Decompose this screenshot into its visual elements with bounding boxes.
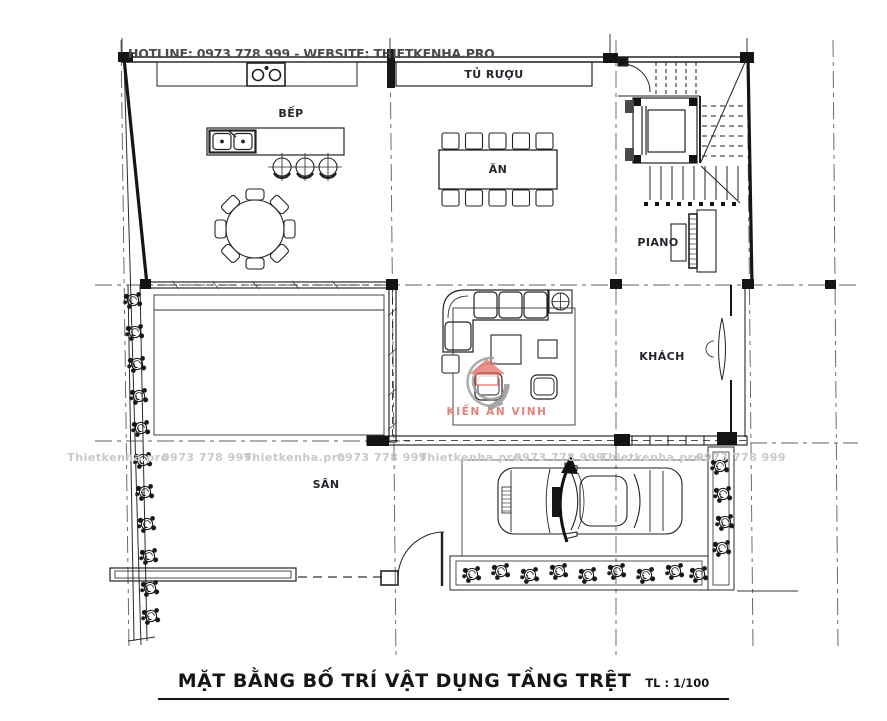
room-label-yard: SÂN: [313, 478, 340, 491]
round-dining-set: [215, 189, 295, 269]
kitchen-counter: [157, 62, 357, 86]
watermark-item: Thietkenha.pro: [67, 451, 168, 464]
watermark-item: 0973 778 999: [514, 451, 604, 464]
logo-watermark-text: KIẾN AN VINH: [446, 403, 547, 418]
hotline-header: HOTLINE: 0973 778 999 - WEBSITE: THIETKE…: [128, 46, 495, 61]
car: [498, 463, 682, 539]
stair-core: [618, 58, 746, 206]
bar-stools: [268, 153, 342, 181]
drawing-title-block: MẶT BẰNG BỐ TRÍ VẬT DỤNG TẦNG TRỆTTL : 1…: [0, 670, 887, 700]
watermark-item: Thietkenha.pro: [419, 451, 520, 464]
drawing-title: MẶT BẰNG BỐ TRÍ VẬT DỤNG TẦNG TRỆT: [178, 670, 632, 692]
floorplan-page: HOTLINE: 0973 778 999 - WEBSITE: THIETKE…: [0, 0, 887, 721]
plant-pot: [549, 290, 572, 313]
room-label-dining: ĂN: [489, 163, 508, 176]
watermark-row: Thietkenha.pro 0973 778 999 Thietkenha.p…: [67, 451, 786, 464]
bottom-planter-strip: [450, 556, 708, 590]
floorplan-drawing: HOTLINE: 0973 778 999 - WEBSITE: THIETKE…: [0, 0, 887, 721]
watermark-item: Thietkenha.pro: [600, 451, 701, 464]
sliding-gate: [110, 568, 296, 581]
inner-yard-terrace: [154, 281, 397, 435]
khach-door: [706, 318, 725, 380]
coffee-table: [491, 335, 521, 364]
room-label-wine-cabinet: TỦ RƯỢU: [464, 67, 523, 81]
room-label-kitchen: BẾP: [278, 105, 303, 120]
room-label-living: KHÁCH: [639, 350, 685, 363]
watermark-item: Thietkenha.pro: [244, 451, 345, 464]
watermark-item: 0973 778 999: [162, 451, 252, 464]
elevator: [625, 98, 697, 163]
kitchen-island: [207, 128, 344, 155]
watermark-item: 0973 778 999: [696, 451, 786, 464]
watermark-item: 0973 778 999: [337, 451, 427, 464]
right-planter-strip: [708, 447, 734, 590]
room-label-piano: PIANO: [637, 236, 678, 249]
pedestrian-gate: [381, 532, 444, 586]
drawing-scale: TL : 1/100: [645, 676, 709, 690]
garage-slab: [462, 460, 708, 556]
